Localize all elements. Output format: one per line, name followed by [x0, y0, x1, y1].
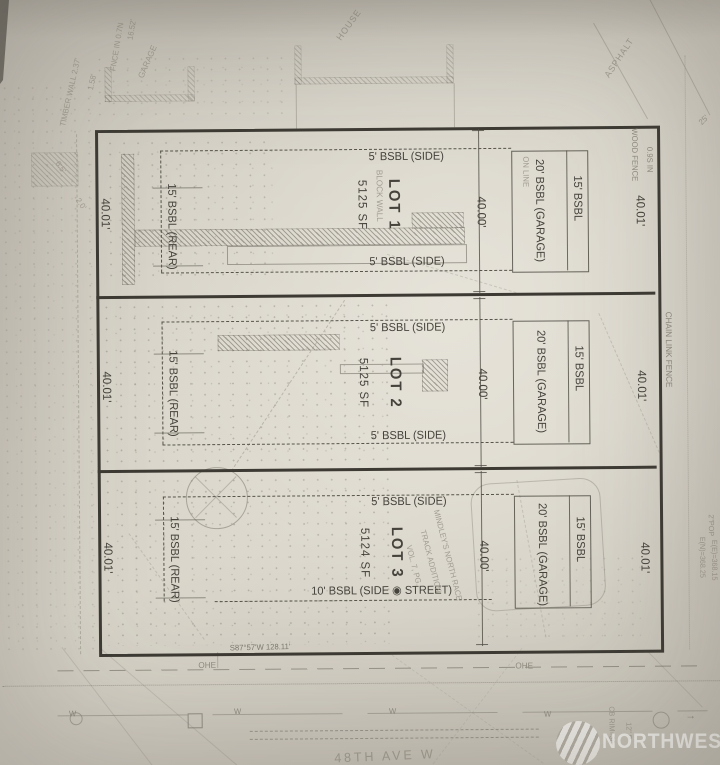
- setback-label: 15' BSBL: [572, 345, 584, 391]
- offset-dim: 25': [698, 114, 711, 127]
- site-plan-drawing: → 5' BSBL (SIDE): [0, 0, 720, 765]
- lot-number: LOT 1: [386, 179, 402, 231]
- wood-fence-note: WOOD FENCE: [630, 128, 638, 181]
- lot-number: LOT 2: [387, 357, 403, 409]
- setback-label: 20' BSBL (GARAGE): [533, 159, 545, 262]
- setback-label: 5' BSBL (SIDE): [370, 323, 445, 335]
- setback-label: 5' BSBL (SIDE): [371, 431, 446, 443]
- manhole-symbol: [653, 712, 670, 729]
- street-name: 48TH AVE W: [334, 747, 436, 764]
- fence-dim: 16.52': [127, 19, 138, 41]
- lot-area: 5125 SF: [358, 358, 370, 408]
- triple-slash-icon: [556, 721, 600, 765]
- block-wall-note: BLOCK WALL: [375, 170, 384, 222]
- lot-side-dim: 40.01': [635, 195, 647, 226]
- lot-area: 5125 SF: [356, 180, 368, 230]
- flow-arrow-icon: →: [685, 711, 696, 722]
- water-label: W: [389, 708, 396, 716]
- pavement-edge: [2, 680, 720, 687]
- tie-line: [296, 84, 297, 128]
- lot-depth-dim: 40.00': [478, 540, 490, 571]
- setback-label: 5' BSBL (SIDE): [369, 257, 444, 269]
- setback-label: 20' BSBL (GARAGE): [534, 330, 546, 433]
- setback-label: 15' BSBL: [573, 516, 585, 562]
- chain-link-fence-line: [684, 55, 690, 649]
- wood-fence-note: 0.9S IN: [645, 147, 653, 173]
- lot-side-dim: 40.01': [100, 198, 112, 229]
- asphalt-note: ASPHALT: [603, 37, 636, 80]
- lot-side-dim: 40.01': [639, 542, 651, 573]
- pipe-note: 2"POP: [707, 514, 715, 536]
- overhead-electric-line: [57, 665, 697, 671]
- survey-photo: → 5' BSBL (SIDE): [0, 0, 720, 765]
- building-wall: [295, 76, 454, 84]
- house-note: HOUSE: [335, 8, 363, 42]
- ohe-label: OHE: [515, 661, 533, 670]
- rockery-band: [250, 729, 539, 740]
- setback-label: 15' BSBL (REAR): [167, 516, 179, 602]
- road-edge: [62, 647, 154, 765]
- setback-label: 15' BSBL (REAR): [165, 183, 177, 269]
- setback-label: 5' BSBL (SIDE): [371, 497, 446, 509]
- setback-label: 20' BSBL (GARAGE): [535, 503, 547, 606]
- ohe-label: OHE: [198, 661, 216, 670]
- dimension-tick: [476, 644, 488, 645]
- elevation-note: E(E)=368.15: [710, 540, 718, 581]
- dimension-tick: [473, 298, 485, 299]
- lot-depth-dim: 40.00': [477, 368, 489, 399]
- lot-side-dim: 40.01': [102, 542, 114, 573]
- water-label: W: [234, 708, 241, 716]
- lot-side-dim: 40.01': [636, 370, 648, 401]
- asphalt-edge: [593, 23, 648, 119]
- lot-area: 5124 SF: [359, 528, 371, 578]
- chain-link-note: CHAIN LINK FENCE: [664, 312, 673, 388]
- watermark-logo: [556, 721, 600, 765]
- setback-label: 15' BSBL: [571, 175, 583, 221]
- asphalt-edge: [649, 0, 711, 115]
- lot-depth-dim: 40.00': [476, 196, 488, 227]
- dimension-tick: [475, 465, 487, 466]
- setback-label: 5' BSBL (SIDE): [369, 152, 444, 164]
- road-edge: [646, 650, 703, 708]
- building-wall: [105, 94, 195, 102]
- shed-wall: [31, 152, 78, 186]
- dimension-tick: [475, 472, 487, 473]
- water-label: W: [544, 711, 551, 719]
- lot-number: LOT 3: [388, 527, 404, 579]
- setback-label: 15' BSBL (REAR): [166, 350, 178, 436]
- catch-basin-symbol: [188, 713, 203, 728]
- water-label: W: [69, 710, 76, 718]
- on-line-note: ON LINE: [521, 156, 529, 187]
- dimension-tick: [472, 130, 484, 131]
- lot-side-dim: 40.01': [101, 371, 113, 402]
- south-bearing: S87°57'W 128.11': [230, 643, 291, 653]
- watermark-brand: NORTHWEST: [602, 730, 720, 754]
- tie-line: [454, 83, 455, 127]
- contour-line: [433, 648, 523, 764]
- setback-label: 10' BSBL (SIDE ◉ STREET): [311, 586, 452, 599]
- dimension-tick: [473, 291, 485, 292]
- elevation-note: E(N)=368.25: [698, 537, 706, 578]
